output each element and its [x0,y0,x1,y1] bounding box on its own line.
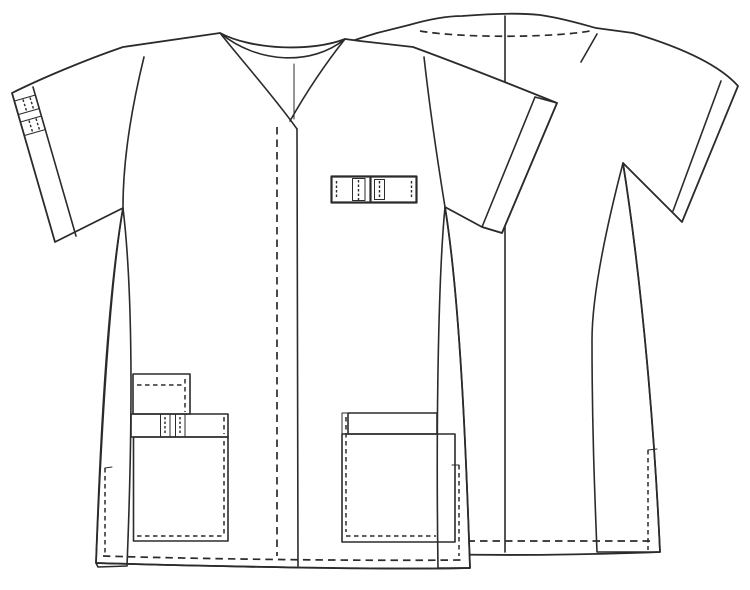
scrub-top-flat-drawing [0,0,750,590]
technical-flat-canvas [0,0,750,590]
center-front-placket-edge [297,129,298,566]
